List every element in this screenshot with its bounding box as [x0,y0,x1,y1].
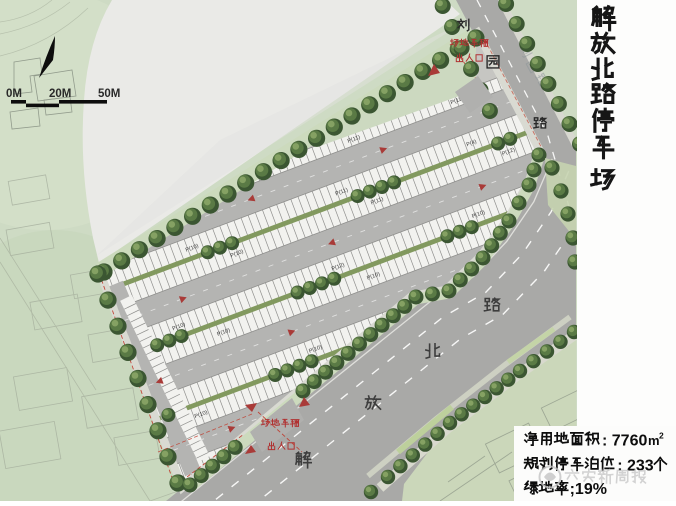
svg-text:: 7760: : 7760 [602,433,647,450]
svg-text:50M: 50M [98,88,120,100]
svg-text:20M: 20M [49,88,71,100]
svg-text:2: 2 [659,431,664,441]
svg-text:0M: 0M [6,88,22,100]
svg-text:m: m [648,433,660,448]
